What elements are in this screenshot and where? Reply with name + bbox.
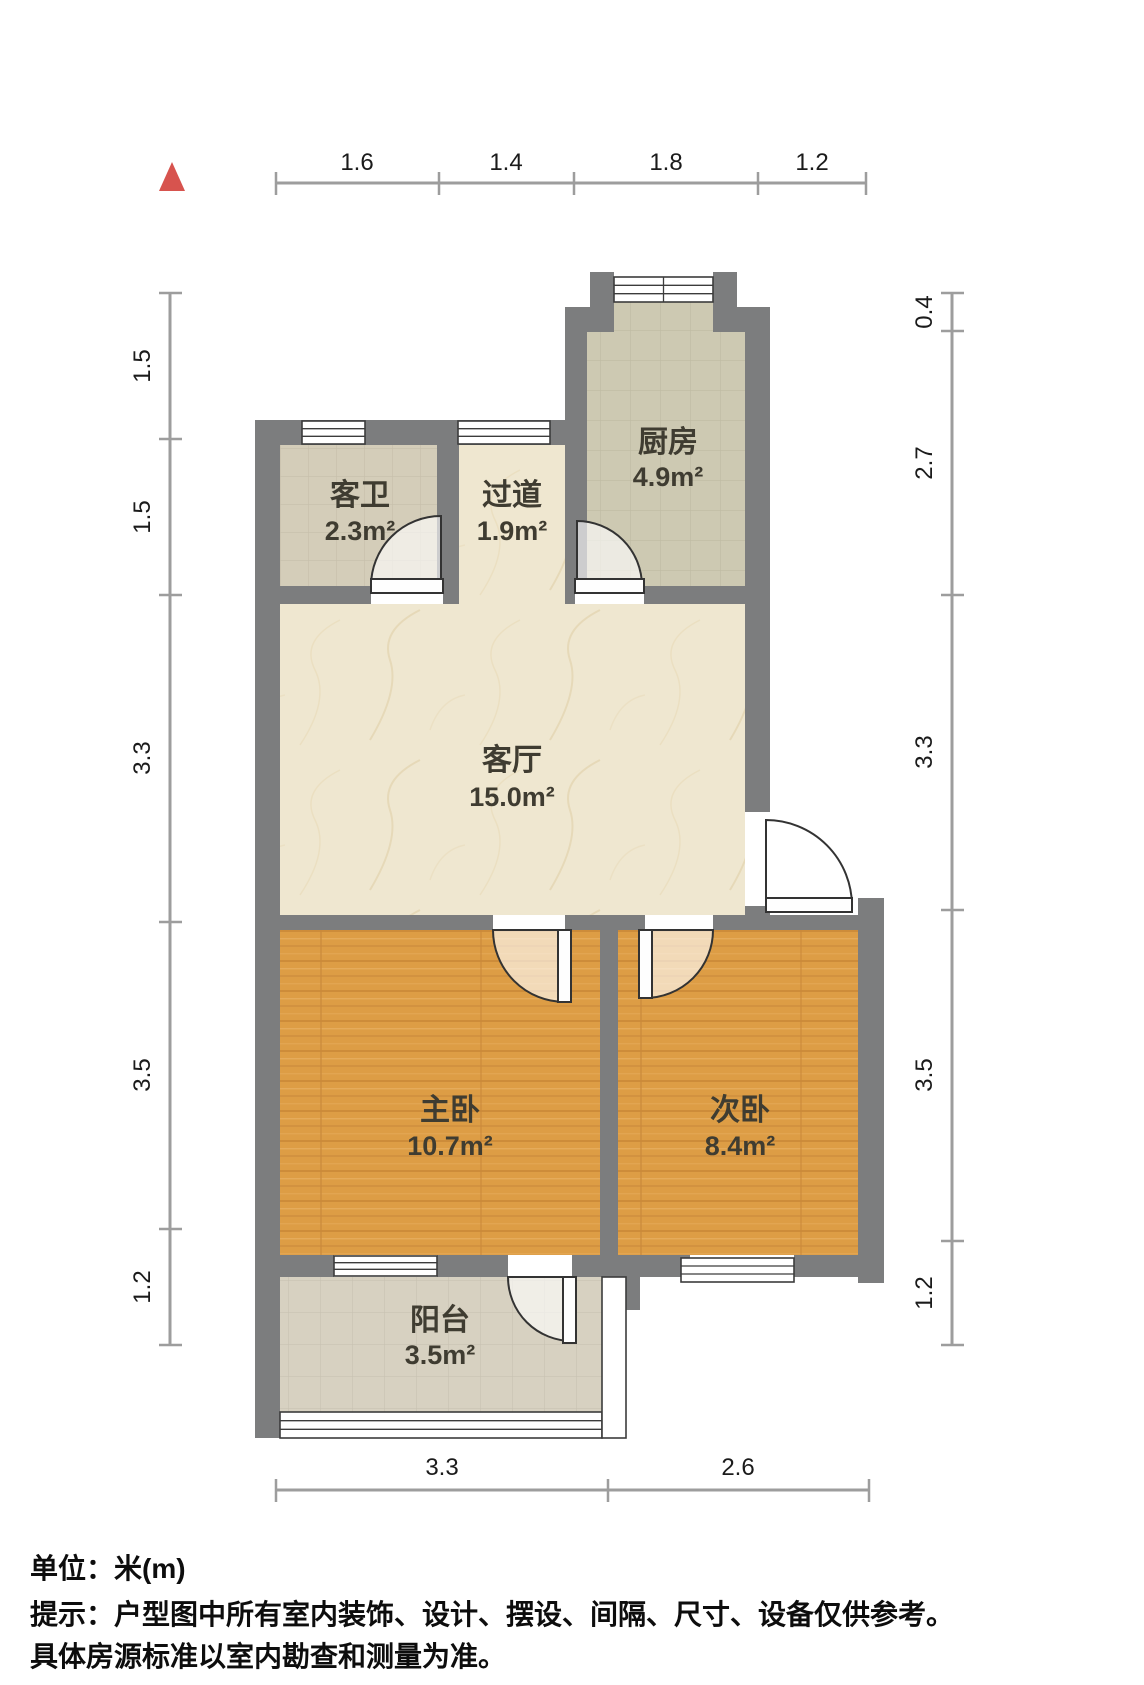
wall-segment xyxy=(443,586,459,604)
kitchen-bay-floor xyxy=(614,302,713,332)
second-bedroom-label: 次卧 xyxy=(710,1094,770,1127)
balcony-front-window xyxy=(280,1412,602,1438)
dimension-top: 1.6 1.4 1.8 1.2 xyxy=(276,149,866,195)
wall-segment xyxy=(572,1255,618,1277)
dimension-right: 0.4 2.7 3.3 3.5 1.2 xyxy=(911,293,964,1345)
kitchen-area: 4.9m² xyxy=(633,462,704,492)
dim-right-5: 1.2 xyxy=(911,1276,938,1309)
footer-notes: 单位：米(m) 提示：户型图中所有室内装饰、设计、摆设、间隔、尺寸、设备仅供参考… xyxy=(30,1552,954,1672)
dim-top-3: 1.8 xyxy=(649,149,682,176)
dim-right-1: 0.4 xyxy=(911,295,938,328)
kitchen-door-leaf xyxy=(575,579,644,593)
living-room-area: 15.0m² xyxy=(469,782,555,812)
master-bedroom-area: 10.7m² xyxy=(407,1131,493,1161)
master-balcony-window xyxy=(334,1256,437,1276)
second-bedroom-window xyxy=(681,1258,794,1282)
dim-right-2: 2.7 xyxy=(911,446,938,479)
living-room-label: 客厅 xyxy=(482,743,542,777)
wall-segment xyxy=(255,915,493,930)
dim-right-4: 3.5 xyxy=(911,1058,938,1091)
kitchen-label: 厨房 xyxy=(638,426,698,459)
dim-top-4: 1.2 xyxy=(795,149,828,176)
wall-segment xyxy=(590,272,614,332)
kitchen-window xyxy=(614,277,713,302)
hallway-area: 1.9m² xyxy=(477,516,548,546)
north-arrow-icon xyxy=(159,162,185,191)
balcony-side-panel xyxy=(602,1277,626,1438)
wall-segment xyxy=(858,898,884,1283)
dimension-left: 1.5 1.5 3.3 3.5 1.2 xyxy=(129,293,182,1345)
wall-segment xyxy=(565,586,575,604)
second-bedroom-area: 8.4m² xyxy=(705,1131,776,1161)
master-bedroom-door-leaf xyxy=(558,930,571,1002)
wall-segment xyxy=(600,930,618,1255)
dim-left-5: 1.2 xyxy=(129,1270,156,1303)
guest-bathroom-area: 2.3m² xyxy=(325,516,396,546)
floor-plan: 厨房 4.9m² 客卫 2.3m² 过道 1.9m² 客厅 15.0m² 主卧 … xyxy=(0,0,1144,1685)
wall-segment xyxy=(713,272,737,332)
dim-left-1: 1.5 xyxy=(129,349,156,382)
hallway-label: 过道 xyxy=(482,479,542,512)
dim-bottom-2: 2.6 xyxy=(721,1454,754,1481)
entry-door-leaf xyxy=(766,898,852,912)
wall-segment xyxy=(618,1255,690,1277)
master-bedroom-label: 主卧 xyxy=(420,1094,480,1127)
wall-segment xyxy=(255,1255,334,1277)
floor-plan-page: 厨房 4.9m² 客卫 2.3m² 过道 1.9m² 客厅 15.0m² 主卧 … xyxy=(0,0,1144,1685)
balcony-area: 3.5m² xyxy=(405,1340,476,1370)
guest-bathroom-label: 客卫 xyxy=(330,478,390,512)
wall-segment xyxy=(437,1255,508,1277)
wall-segment xyxy=(794,1255,884,1277)
footer-tip-line1: 提示：户型图中所有室内装饰、设计、摆设、间隔、尺寸、设备仅供参考。 xyxy=(30,1598,954,1630)
wall-segment xyxy=(565,915,645,930)
guest-bathroom-window xyxy=(302,421,365,444)
guest-bathroom-door-leaf xyxy=(371,579,443,593)
second-bedroom-door-leaf xyxy=(639,930,652,998)
balcony-door-leaf xyxy=(563,1277,576,1343)
dim-left-4: 3.5 xyxy=(129,1058,156,1091)
dim-right-3: 3.3 xyxy=(911,735,938,768)
footer-unit-note: 单位：米(m) xyxy=(30,1552,186,1584)
dim-top-1: 1.6 xyxy=(340,149,373,176)
dimension-bottom: 3.3 2.6 xyxy=(276,1454,869,1502)
footer-tip-line2: 具体房源标准以室内勘查和测量为准。 xyxy=(30,1640,506,1672)
dim-top-2: 1.4 xyxy=(489,149,522,176)
dim-bottom-1: 3.3 xyxy=(425,1454,458,1481)
wall-segment xyxy=(255,586,371,604)
hallway-window xyxy=(458,421,550,444)
dim-left-2: 1.5 xyxy=(129,500,156,533)
dim-left-3: 3.3 xyxy=(129,741,156,774)
wall-segment xyxy=(745,307,770,812)
entry-door-swing xyxy=(766,820,852,906)
balcony-label: 阳台 xyxy=(410,1303,470,1337)
wall-segment xyxy=(644,586,770,604)
